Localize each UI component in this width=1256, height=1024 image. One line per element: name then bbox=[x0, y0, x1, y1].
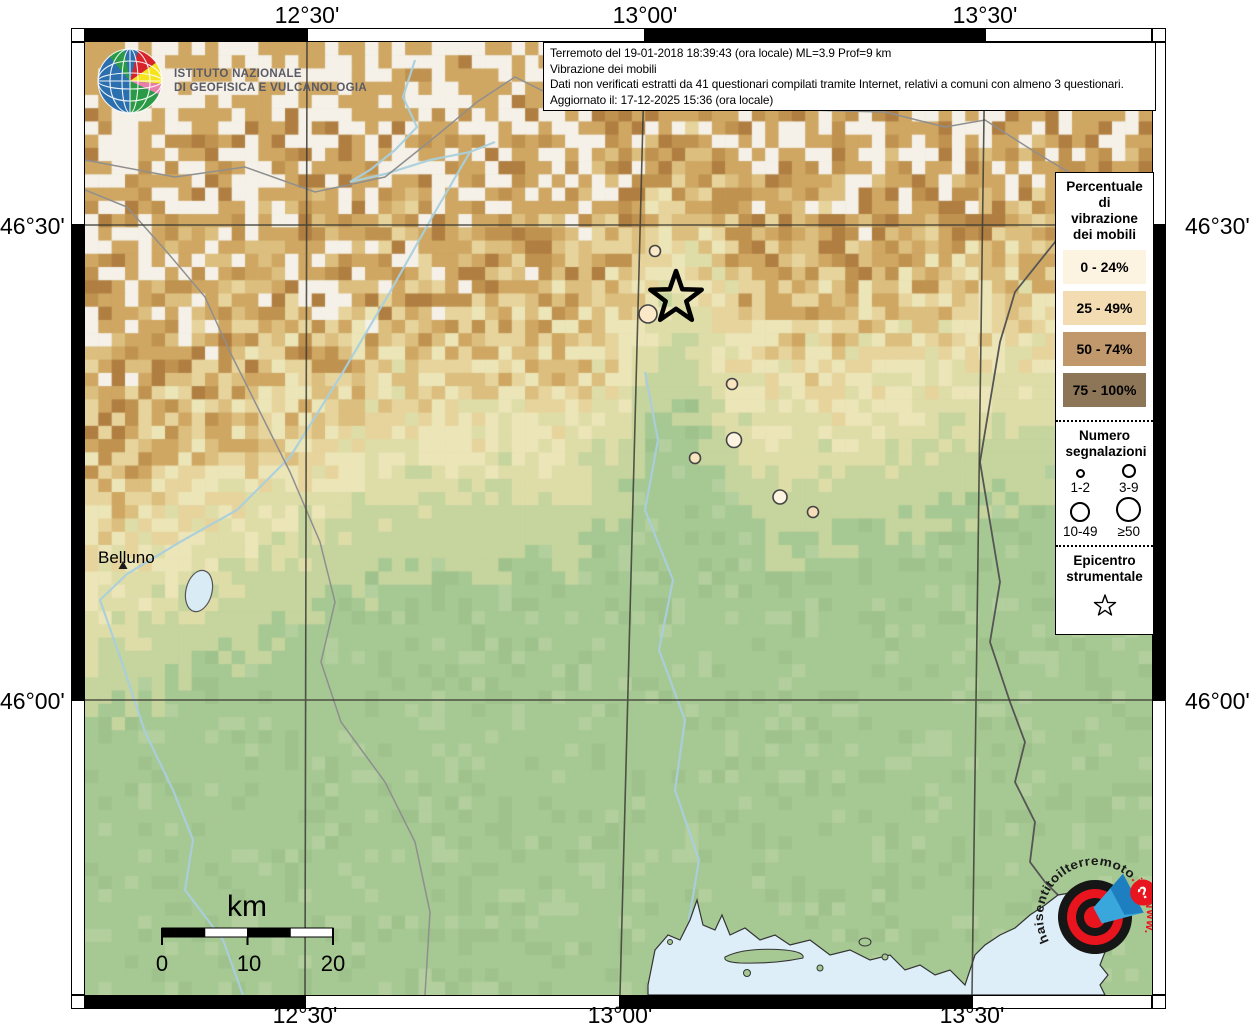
legend-panel: Percentuale di vibrazione dei mobili 0 -… bbox=[1055, 172, 1154, 635]
river-lines bbox=[100, 60, 701, 995]
legend-swatch-0-24: 0 - 24% bbox=[1063, 250, 1146, 284]
legend-percent-section: Percentuale di vibrazione dei mobili 0 -… bbox=[1056, 173, 1153, 420]
epicenter-star-icon bbox=[1090, 593, 1120, 621]
report-circles bbox=[639, 246, 819, 518]
count-circle-icon bbox=[1076, 469, 1085, 478]
event-info-box: Terremoto del 19-01-2018 18:39:43 (ora l… bbox=[543, 42, 1156, 111]
report-circle bbox=[727, 379, 738, 390]
ingv-name-line1: ISTITUTO NAZIONALE bbox=[174, 67, 367, 81]
legend-count-10-49: 10-49 bbox=[1063, 497, 1098, 539]
axis-bottom-1230: 12°30' bbox=[250, 1002, 360, 1024]
lake bbox=[181, 567, 216, 614]
ingv-logo: ISTITUTO NAZIONALE DI GEOFISICA E VULCAN… bbox=[95, 46, 367, 116]
legend-count-title: Numero segnalazioni bbox=[1066, 428, 1144, 460]
report-circle bbox=[650, 246, 661, 257]
map-overlay: Belluno km 0 10 20 bbox=[85, 42, 1152, 995]
legend-swatch-75-100: 75 - 100% bbox=[1063, 373, 1146, 407]
axis-top-1300: 13°00' bbox=[590, 2, 700, 29]
graticule bbox=[85, 42, 1152, 995]
report-circle bbox=[690, 453, 701, 464]
axis-right-4630: 46°30' bbox=[1185, 213, 1250, 240]
hsit-watermark-logo: ? haisentitoilterremoto.it www. bbox=[1020, 842, 1152, 992]
city-belluno: Belluno bbox=[98, 548, 155, 569]
axis-top-1330: 13°30' bbox=[930, 2, 1040, 29]
count-circle-icon bbox=[1116, 497, 1141, 522]
legend-swatch-50-74: 50 - 74% bbox=[1063, 332, 1146, 366]
axis-left-4600: 46°00' bbox=[0, 688, 64, 715]
axis-bottom-1300: 13°00' bbox=[565, 1002, 675, 1024]
epicenter-star bbox=[650, 271, 701, 320]
axis-left-4630: 46°30' bbox=[0, 213, 64, 240]
scale-bar: km 0 10 20 bbox=[156, 890, 345, 976]
axis-bottom-1330: 13°30' bbox=[917, 1002, 1027, 1024]
event-info-line3: Dati non verificati estratti da 41 quest… bbox=[550, 77, 1149, 93]
scale-tick-20: 20 bbox=[321, 951, 345, 976]
legend-epicenter-title: Epicentro strumentale bbox=[1066, 553, 1144, 585]
report-circle bbox=[639, 305, 657, 323]
legend-epicenter-section: Epicentro strumentale bbox=[1056, 545, 1153, 634]
event-info-line4: Aggiornato il: 17-12-2025 15:36 (ora loc… bbox=[550, 93, 1149, 109]
axis-right-4600: 46°00' bbox=[1185, 688, 1250, 715]
ingv-shakemap-figure: Belluno km 0 10 20 bbox=[0, 0, 1256, 1024]
report-circle bbox=[808, 507, 819, 518]
ingv-name-line2: DI GEOFISICA E VULCANOLOGIA bbox=[174, 81, 367, 95]
legend-count-1-2: 1-2 bbox=[1070, 464, 1090, 495]
ingv-globe-icon bbox=[95, 46, 165, 116]
legend-count-3-9: 3-9 bbox=[1119, 464, 1139, 495]
city-label: Belluno bbox=[98, 548, 155, 567]
event-info-line2: Vibrazione dei mobili bbox=[550, 62, 1149, 78]
axis-top-1230: 12°30' bbox=[252, 2, 362, 29]
report-circle bbox=[773, 490, 787, 504]
map-canvas-area: Belluno km 0 10 20 bbox=[85, 42, 1152, 995]
legend-count-section: Numero segnalazioni 1-2 3-9 10-49 ≥50 bbox=[1056, 420, 1153, 545]
event-info-line1: Terremoto del 19-01-2018 18:39:43 (ora l… bbox=[550, 46, 1149, 62]
legend-swatch-25-49: 25 - 49% bbox=[1063, 291, 1146, 325]
count-circle-icon bbox=[1070, 502, 1090, 522]
scale-tick-0: 0 bbox=[156, 951, 168, 976]
legend-percent-title: Percentuale di vibrazione dei mobili bbox=[1066, 179, 1144, 243]
count-circle-icon bbox=[1122, 464, 1136, 478]
report-circle bbox=[727, 433, 742, 448]
scale-unit: km bbox=[227, 890, 267, 923]
legend-count-50plus: ≥50 bbox=[1116, 497, 1141, 539]
scale-tick-10: 10 bbox=[237, 951, 261, 976]
